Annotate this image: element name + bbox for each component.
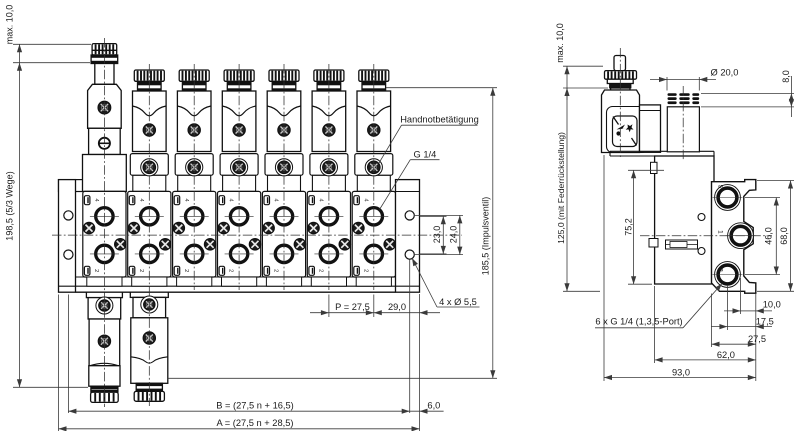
svg-text:5: 5 [716, 185, 723, 189]
svg-text:P = 27,5: P = 27,5 [335, 302, 370, 312]
svg-text:2: 2 [93, 269, 99, 272]
svg-text:4: 4 [183, 199, 189, 202]
svg-text:max. 10,0: max. 10,0 [5, 5, 15, 45]
svg-text:4: 4 [362, 199, 368, 202]
svg-text:A = (27,5 n + 28,5): A = (27,5 n + 28,5) [216, 418, 293, 428]
svg-text:4: 4 [138, 199, 144, 202]
svg-text:B = (27,5 n + 16,5): B = (27,5 n + 16,5) [216, 400, 294, 410]
svg-text:29,0: 29,0 [388, 302, 406, 312]
svg-text:2: 2 [273, 269, 279, 272]
svg-text:75,2: 75,2 [623, 218, 633, 236]
svg-text:Handnotbetätigung: Handnotbetätigung [400, 115, 479, 125]
svg-text:46,0: 46,0 [763, 227, 773, 245]
svg-text:185,5 (Impulsventil): 185,5 (Impulsventil) [480, 197, 490, 276]
svg-text:24,0: 24,0 [448, 226, 458, 244]
svg-text:2: 2 [183, 269, 189, 272]
svg-text:6,0: 6,0 [427, 400, 440, 410]
svg-text:10,0: 10,0 [763, 300, 781, 310]
svg-text:4 x Ø 5,5: 4 x Ø 5,5 [439, 297, 477, 307]
svg-text:6 x G 1/4 (1,3,5-Port): 6 x G 1/4 (1,3,5-Port) [595, 317, 682, 327]
svg-text:4: 4 [93, 199, 99, 202]
svg-text:8,0: 8,0 [781, 70, 791, 83]
svg-text:4: 4 [228, 199, 234, 202]
svg-text:2: 2 [228, 269, 234, 272]
svg-text:17,5: 17,5 [756, 317, 774, 327]
svg-text:1: 1 [716, 230, 723, 234]
svg-text:Ø 20,0: Ø 20,0 [711, 68, 739, 78]
svg-text:2: 2 [138, 269, 144, 272]
svg-text:125,0 (mit Federrückstellung): 125,0 (mit Federrückstellung) [556, 132, 566, 244]
svg-text:3: 3 [716, 268, 723, 272]
svg-text:G 1/4: G 1/4 [414, 149, 437, 159]
svg-text:4: 4 [273, 199, 279, 202]
svg-text:68,0: 68,0 [779, 227, 789, 245]
svg-text:27,5: 27,5 [748, 334, 766, 344]
svg-text:23,0: 23,0 [432, 226, 442, 244]
svg-text:62,0: 62,0 [717, 350, 735, 360]
svg-text:max. 10,0: max. 10,0 [555, 23, 565, 63]
svg-text:198,5 (5/3 Wege): 198,5 (5/3 Wege) [4, 171, 14, 240]
svg-text:93,0: 93,0 [672, 367, 690, 377]
svg-text:2: 2 [318, 269, 324, 272]
svg-text:2: 2 [362, 269, 368, 272]
svg-text:4: 4 [318, 199, 324, 202]
